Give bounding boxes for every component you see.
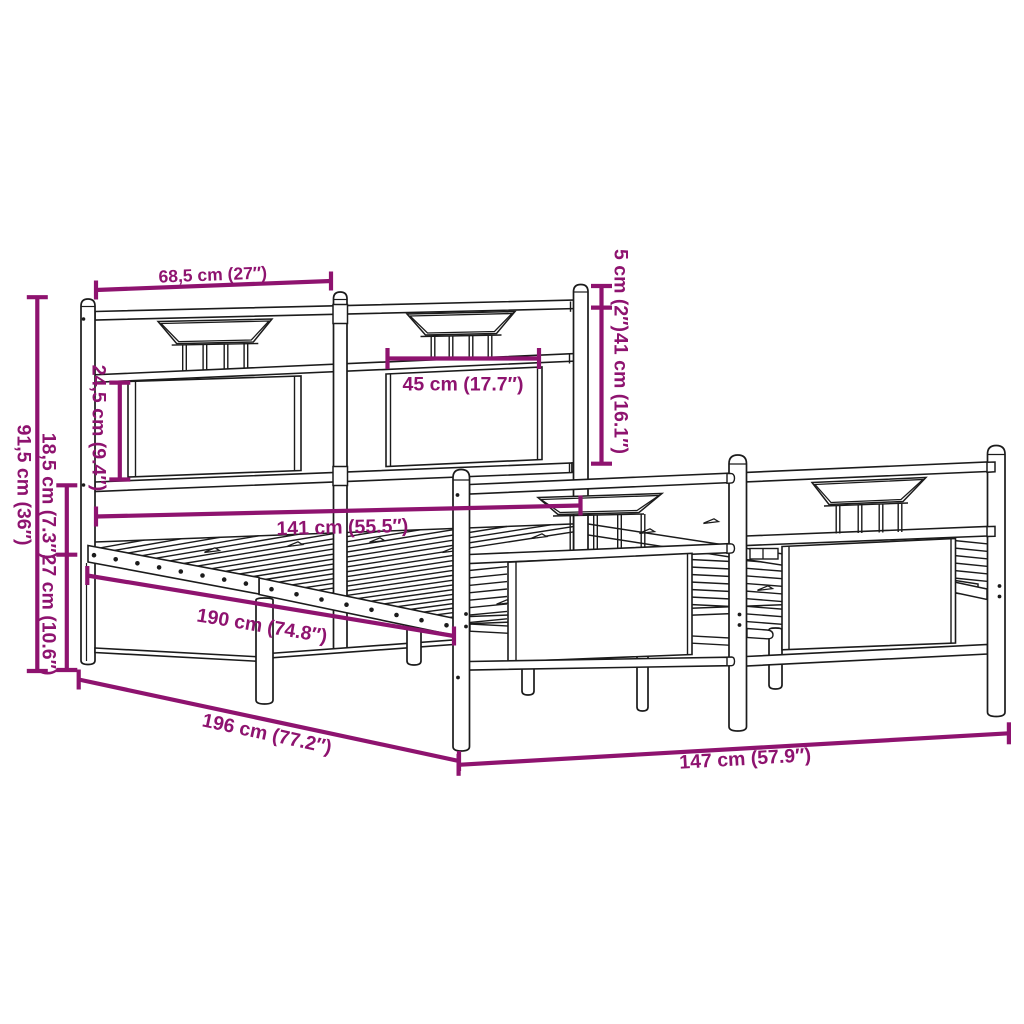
svg-text:141 cm (55.5″): 141 cm (55.5″) [276, 515, 408, 540]
svg-text:91,5 cm (36″): 91,5 cm (36″) [13, 425, 35, 546]
svg-text:41 cm (16.1″): 41 cm (16.1″) [610, 333, 632, 454]
svg-text:5 cm (2″): 5 cm (2″) [610, 249, 632, 332]
svg-text:68,5 cm (27″): 68,5 cm (27″) [158, 262, 267, 286]
svg-text:24,5 cm (9.4″): 24,5 cm (9.4″) [88, 365, 110, 491]
svg-text:18,5 cm (7.3″): 18,5 cm (7.3″) [38, 433, 60, 559]
svg-text:45 cm (17.7″): 45 cm (17.7″) [403, 374, 524, 396]
svg-text:27 cm (10.6″): 27 cm (10.6″) [38, 555, 60, 676]
